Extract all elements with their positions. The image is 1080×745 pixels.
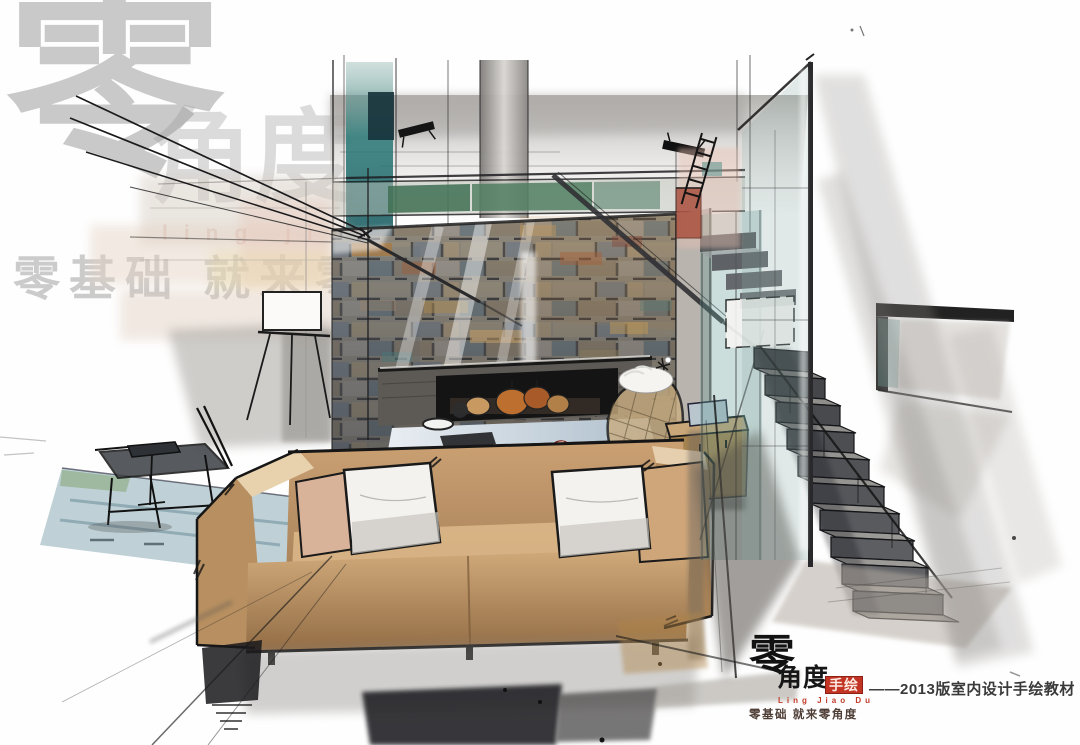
logo-brand: 角度: [777, 666, 829, 691]
artwork-canvas: 零 角度 ling jiao du 零基础 就来零角度: [0, 0, 1080, 745]
logo-caption: ——2013版室内设计手绘教材: [869, 678, 1075, 699]
logo-pinyin: Ling Jiao Du: [778, 696, 874, 705]
logo-brand-red-seal: 手绘: [825, 676, 863, 694]
logo-block: 零 角度 手绘 ——2013版室内设计手绘教材 Ling Jiao Du 零基础…: [745, 630, 1080, 730]
logo-slogan: 零基础 就来零角度: [749, 706, 858, 722]
upper-right-pink-wall: [676, 133, 740, 250]
